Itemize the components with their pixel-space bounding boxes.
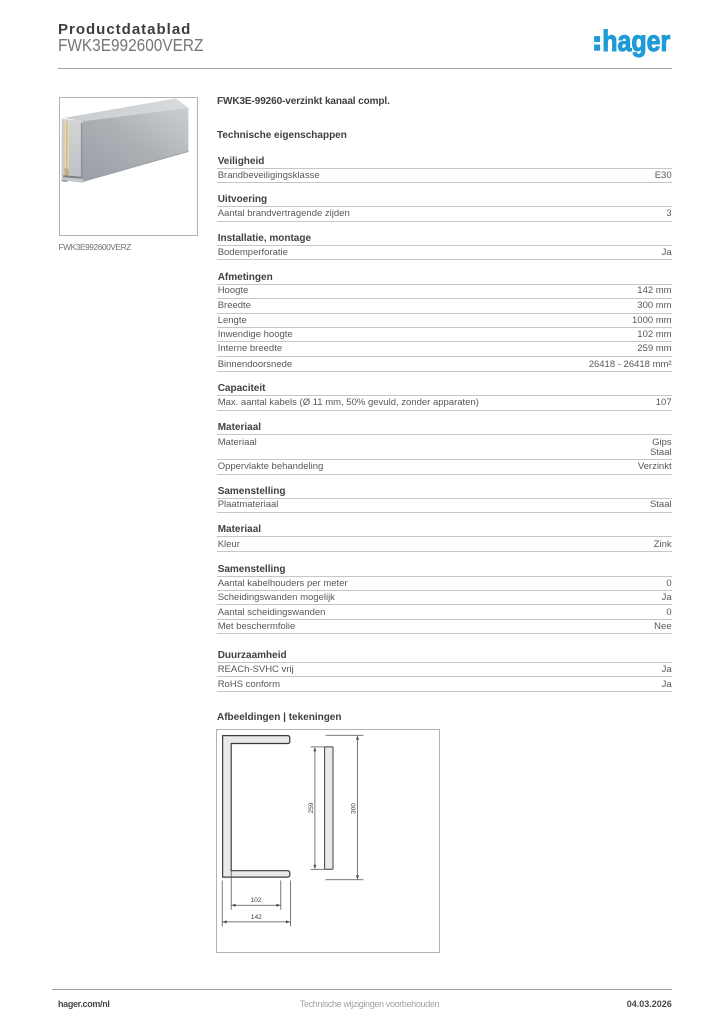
svg-text:hager: hager — [602, 28, 670, 58]
svg-text:300: 300 — [350, 803, 357, 814]
svg-text:102: 102 — [250, 897, 261, 904]
svg-text:259: 259 — [307, 802, 314, 813]
svg-text:142: 142 — [250, 914, 261, 921]
